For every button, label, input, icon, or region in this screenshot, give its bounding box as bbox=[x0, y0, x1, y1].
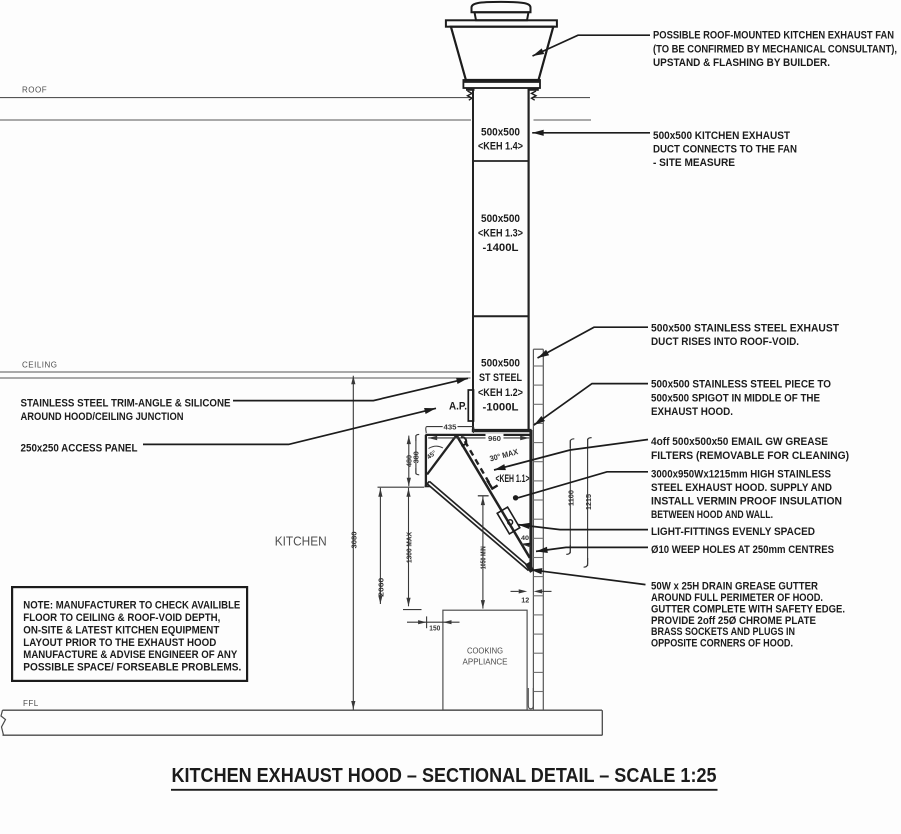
svg-text:NOTE: MANUFACTURER TO CHECK AV: NOTE: MANUFACTURER TO CHECK AVAILIBLE bbox=[23, 600, 240, 612]
svg-text:INSTALL VERMIN PROOF INSULATIO: INSTALL VERMIN PROOF INSULATION bbox=[651, 496, 842, 508]
svg-text:LAYOUT PRIOR TO THE EXHAUST HO: LAYOUT PRIOR TO THE EXHAUST HOOD bbox=[23, 637, 216, 649]
svg-text:3000x950Wx1215mm HIGH STAINLES: 3000x950Wx1215mm HIGH STAINLESS bbox=[651, 469, 831, 481]
svg-text:500x500: 500x500 bbox=[481, 127, 520, 139]
svg-text:4off 500x500x50 EMAIL GW GREAS: 4off 500x500x50 EMAIL GW GREASE bbox=[651, 436, 828, 448]
svg-text:DUCT CONNECTS TO THE FAN: DUCT CONNECTS TO THE FAN bbox=[653, 143, 797, 155]
svg-text:500x500 STAINLESS STEEL EXHAUS: 500x500 STAINLESS STEEL EXHAUST bbox=[651, 323, 839, 335]
svg-text:1100: 1100 bbox=[569, 490, 576, 506]
svg-text:KITCHEN EXHAUST HOOD – SECTION: KITCHEN EXHAUST HOOD – SECTIONAL DETAIL … bbox=[172, 765, 717, 787]
svg-text:50W x 25H DRAIN GREASE GUTTER: 50W x 25H DRAIN GREASE GUTTER bbox=[651, 581, 818, 593]
svg-text:UPSTAND & FLASHING BY BUILDER.: UPSTAND & FLASHING BY BUILDER. bbox=[653, 57, 830, 69]
svg-text:ROOF: ROOF bbox=[22, 86, 47, 95]
svg-text:-1400L: -1400L bbox=[483, 242, 519, 254]
svg-text:250x250 ACCESS PANEL: 250x250 ACCESS PANEL bbox=[21, 443, 138, 455]
svg-text:BRASS SOCKETS AND PLUGS IN: BRASS SOCKETS AND PLUGS IN bbox=[651, 626, 795, 638]
svg-text:A.P.: A.P. bbox=[449, 401, 467, 413]
svg-text:960: 960 bbox=[488, 434, 501, 443]
svg-text:3080: 3080 bbox=[352, 531, 359, 548]
svg-text:1300 MAX: 1300 MAX bbox=[406, 532, 413, 563]
svg-text:AROUND FULL PERIMETER OF HOOD.: AROUND FULL PERIMETER OF HOOD. bbox=[651, 592, 823, 604]
svg-text:<KEH 1.3>: <KEH 1.3> bbox=[478, 227, 523, 239]
svg-text:PROVIDE 2off 25Ø CHROME PLATE: PROVIDE 2off 25Ø CHROME PLATE bbox=[651, 615, 816, 627]
svg-text:1050 MIN: 1050 MIN bbox=[481, 546, 488, 569]
svg-text:500x500: 500x500 bbox=[481, 213, 520, 225]
svg-text:Ø10 WEEP HOLES AT 250mm CENTRE: Ø10 WEEP HOLES AT 250mm CENTRES bbox=[651, 544, 834, 556]
svg-text:STAINLESS STEEL TRIM-ANGLE & S: STAINLESS STEEL TRIM-ANGLE & SILICONE bbox=[21, 398, 231, 410]
svg-text:380: 380 bbox=[414, 451, 421, 463]
svg-text:MANUFACTURE & ADVISE ENGINEER: MANUFACTURE & ADVISE ENGINEER OF ANY bbox=[23, 649, 238, 661]
svg-text:<KEH 1.2>: <KEH 1.2> bbox=[478, 387, 523, 399]
svg-text:BETWEEN HOOD AND WALL.: BETWEEN HOOD AND WALL. bbox=[651, 509, 773, 521]
svg-text:FFL: FFL bbox=[23, 699, 39, 708]
svg-text:500x500 STAINLESS STEEL PIECE: 500x500 STAINLESS STEEL PIECE TO bbox=[651, 379, 831, 391]
svg-text:435: 435 bbox=[444, 422, 457, 431]
svg-text:COOKING: COOKING bbox=[467, 647, 503, 656]
svg-text:40: 40 bbox=[521, 535, 529, 542]
svg-text:FLOOR TO CEILING & ROOF-VOID D: FLOOR TO CEILING & ROOF-VOID DEPTH, bbox=[23, 612, 220, 624]
svg-text:-1000L: -1000L bbox=[483, 402, 519, 414]
svg-text:POSSIBLE ROOF-MOUNTED KITCHEN: POSSIBLE ROOF-MOUNTED KITCHEN EXHAUST FA… bbox=[653, 30, 894, 42]
svg-text:ON-SITE & LATEST KITCHEN EQUIP: ON-SITE & LATEST KITCHEN EQUIPMENT bbox=[23, 624, 219, 636]
svg-text:500x500 KITCHEN EXHAUST: 500x500 KITCHEN EXHAUST bbox=[653, 130, 790, 142]
svg-text:480: 480 bbox=[406, 455, 413, 467]
svg-text:POSSIBLE SPACE/ FORSEABLE PRO: POSSIBLE SPACE/ FORSEABLE PROBLEMS. bbox=[23, 661, 241, 673]
svg-text:GUTTER COMPLETE WITH SAFETY ED: GUTTER COMPLETE WITH SAFETY EDGE. bbox=[651, 603, 845, 615]
svg-text:<KEH 1.4>: <KEH 1.4> bbox=[478, 141, 523, 153]
svg-text:ST STEEL: ST STEEL bbox=[479, 372, 522, 384]
svg-text:FILTERS (REMOVABLE FOR CLEANI: FILTERS (REMOVABLE FOR CLEANING) bbox=[651, 450, 849, 462]
svg-text:DUCT RISES INTO ROOF-VOID.: DUCT RISES INTO ROOF-VOID. bbox=[651, 336, 799, 348]
svg-text:150: 150 bbox=[429, 623, 440, 632]
svg-text:STEEL EXHAUST HOOD. SUPPLY AND: STEEL EXHAUST HOOD. SUPPLY AND bbox=[651, 482, 832, 494]
svg-text:AROUND HOOD/CEILING JUNCTION: AROUND HOOD/CEILING JUNCTION bbox=[21, 411, 184, 423]
svg-text:12: 12 bbox=[521, 595, 529, 604]
svg-text:2060: 2060 bbox=[379, 578, 386, 597]
svg-text:APPLIANCE: APPLIANCE bbox=[463, 657, 508, 666]
svg-text:(TO BE CONFIRMED BY MECHANICAL: (TO BE CONFIRMED BY MECHANICAL CONSULTAN… bbox=[653, 43, 897, 55]
svg-text:- SITE MEASURE: - SITE MEASURE bbox=[653, 157, 735, 169]
svg-text:<KEH 1.1>: <KEH 1.1> bbox=[496, 473, 530, 485]
svg-text:KITCHEN: KITCHEN bbox=[275, 534, 327, 548]
svg-text:500x500 SPIGOT IN MIDDLE OF TH: 500x500 SPIGOT IN MIDDLE OF THE bbox=[651, 392, 820, 404]
svg-text:1215: 1215 bbox=[586, 494, 593, 510]
svg-text:EXHAUST HOOD.: EXHAUST HOOD. bbox=[651, 406, 733, 418]
svg-text:CEILING: CEILING bbox=[22, 361, 58, 370]
svg-text:LIGHT-FITTINGS EVENLY SPACED: LIGHT-FITTINGS EVENLY SPACED bbox=[651, 526, 815, 538]
svg-text:OPPOSITE CORNERS OF HOOD.: OPPOSITE CORNERS OF HOOD. bbox=[651, 638, 793, 650]
svg-text:500x500: 500x500 bbox=[481, 357, 520, 369]
